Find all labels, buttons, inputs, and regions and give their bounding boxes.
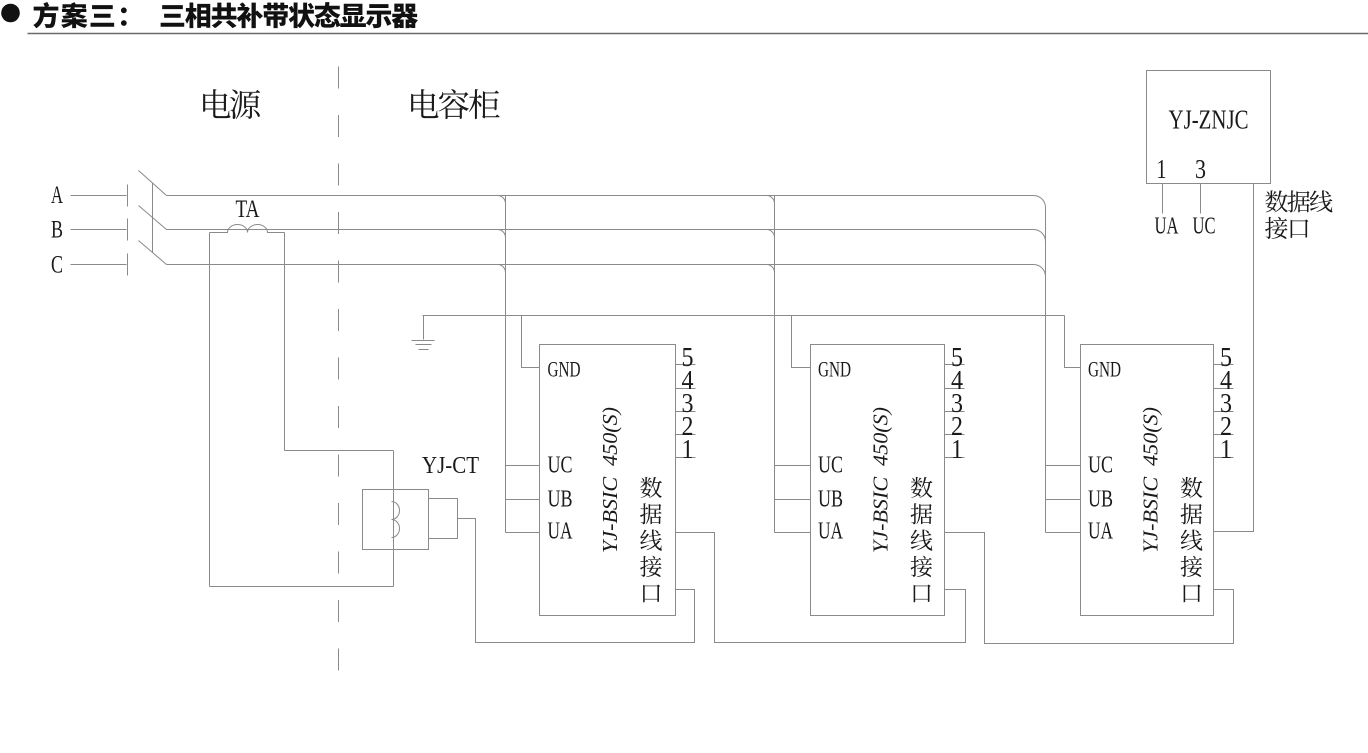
svg-text:UB: UB	[818, 487, 843, 513]
svg-text:UC: UC	[1193, 214, 1216, 240]
svg-text:YJ-BSIC 450(S): YJ-BSIC 450(S)	[1139, 407, 1163, 553]
svg-text:1: 1	[682, 434, 694, 464]
svg-text:1: 1	[951, 434, 963, 464]
svg-text:UA: UA	[1155, 214, 1179, 240]
svg-text:UB: UB	[1088, 487, 1113, 513]
svg-text:C: C	[51, 252, 63, 279]
svg-text:UA: UA	[818, 519, 843, 545]
svg-text:1: 1	[1220, 434, 1232, 464]
svg-text:YJ-BSIC 450(S): YJ-BSIC 450(S)	[869, 407, 893, 553]
svg-text:UC: UC	[1088, 453, 1113, 479]
svg-text:B: B	[51, 217, 63, 244]
svg-text:UB: UB	[548, 487, 573, 513]
svg-text:A: A	[51, 182, 63, 209]
svg-text:YJ-ZNJC: YJ-ZNJC	[1169, 105, 1249, 135]
svg-text:TA: TA	[236, 196, 260, 223]
svg-text:UA: UA	[548, 519, 573, 545]
svg-text:3: 3	[1195, 154, 1206, 184]
svg-text:1: 1	[1157, 154, 1167, 184]
svg-text:UC: UC	[548, 453, 573, 479]
svg-text:GND: GND	[818, 357, 851, 382]
svg-text:YJ-CT: YJ-CT	[422, 453, 479, 479]
svg-text:UA: UA	[1088, 519, 1113, 545]
svg-text:GND: GND	[1088, 357, 1121, 382]
svg-text:YJ-BSIC 450(S): YJ-BSIC 450(S)	[598, 407, 622, 553]
svg-text:UC: UC	[818, 453, 843, 479]
svg-text:GND: GND	[548, 357, 581, 382]
